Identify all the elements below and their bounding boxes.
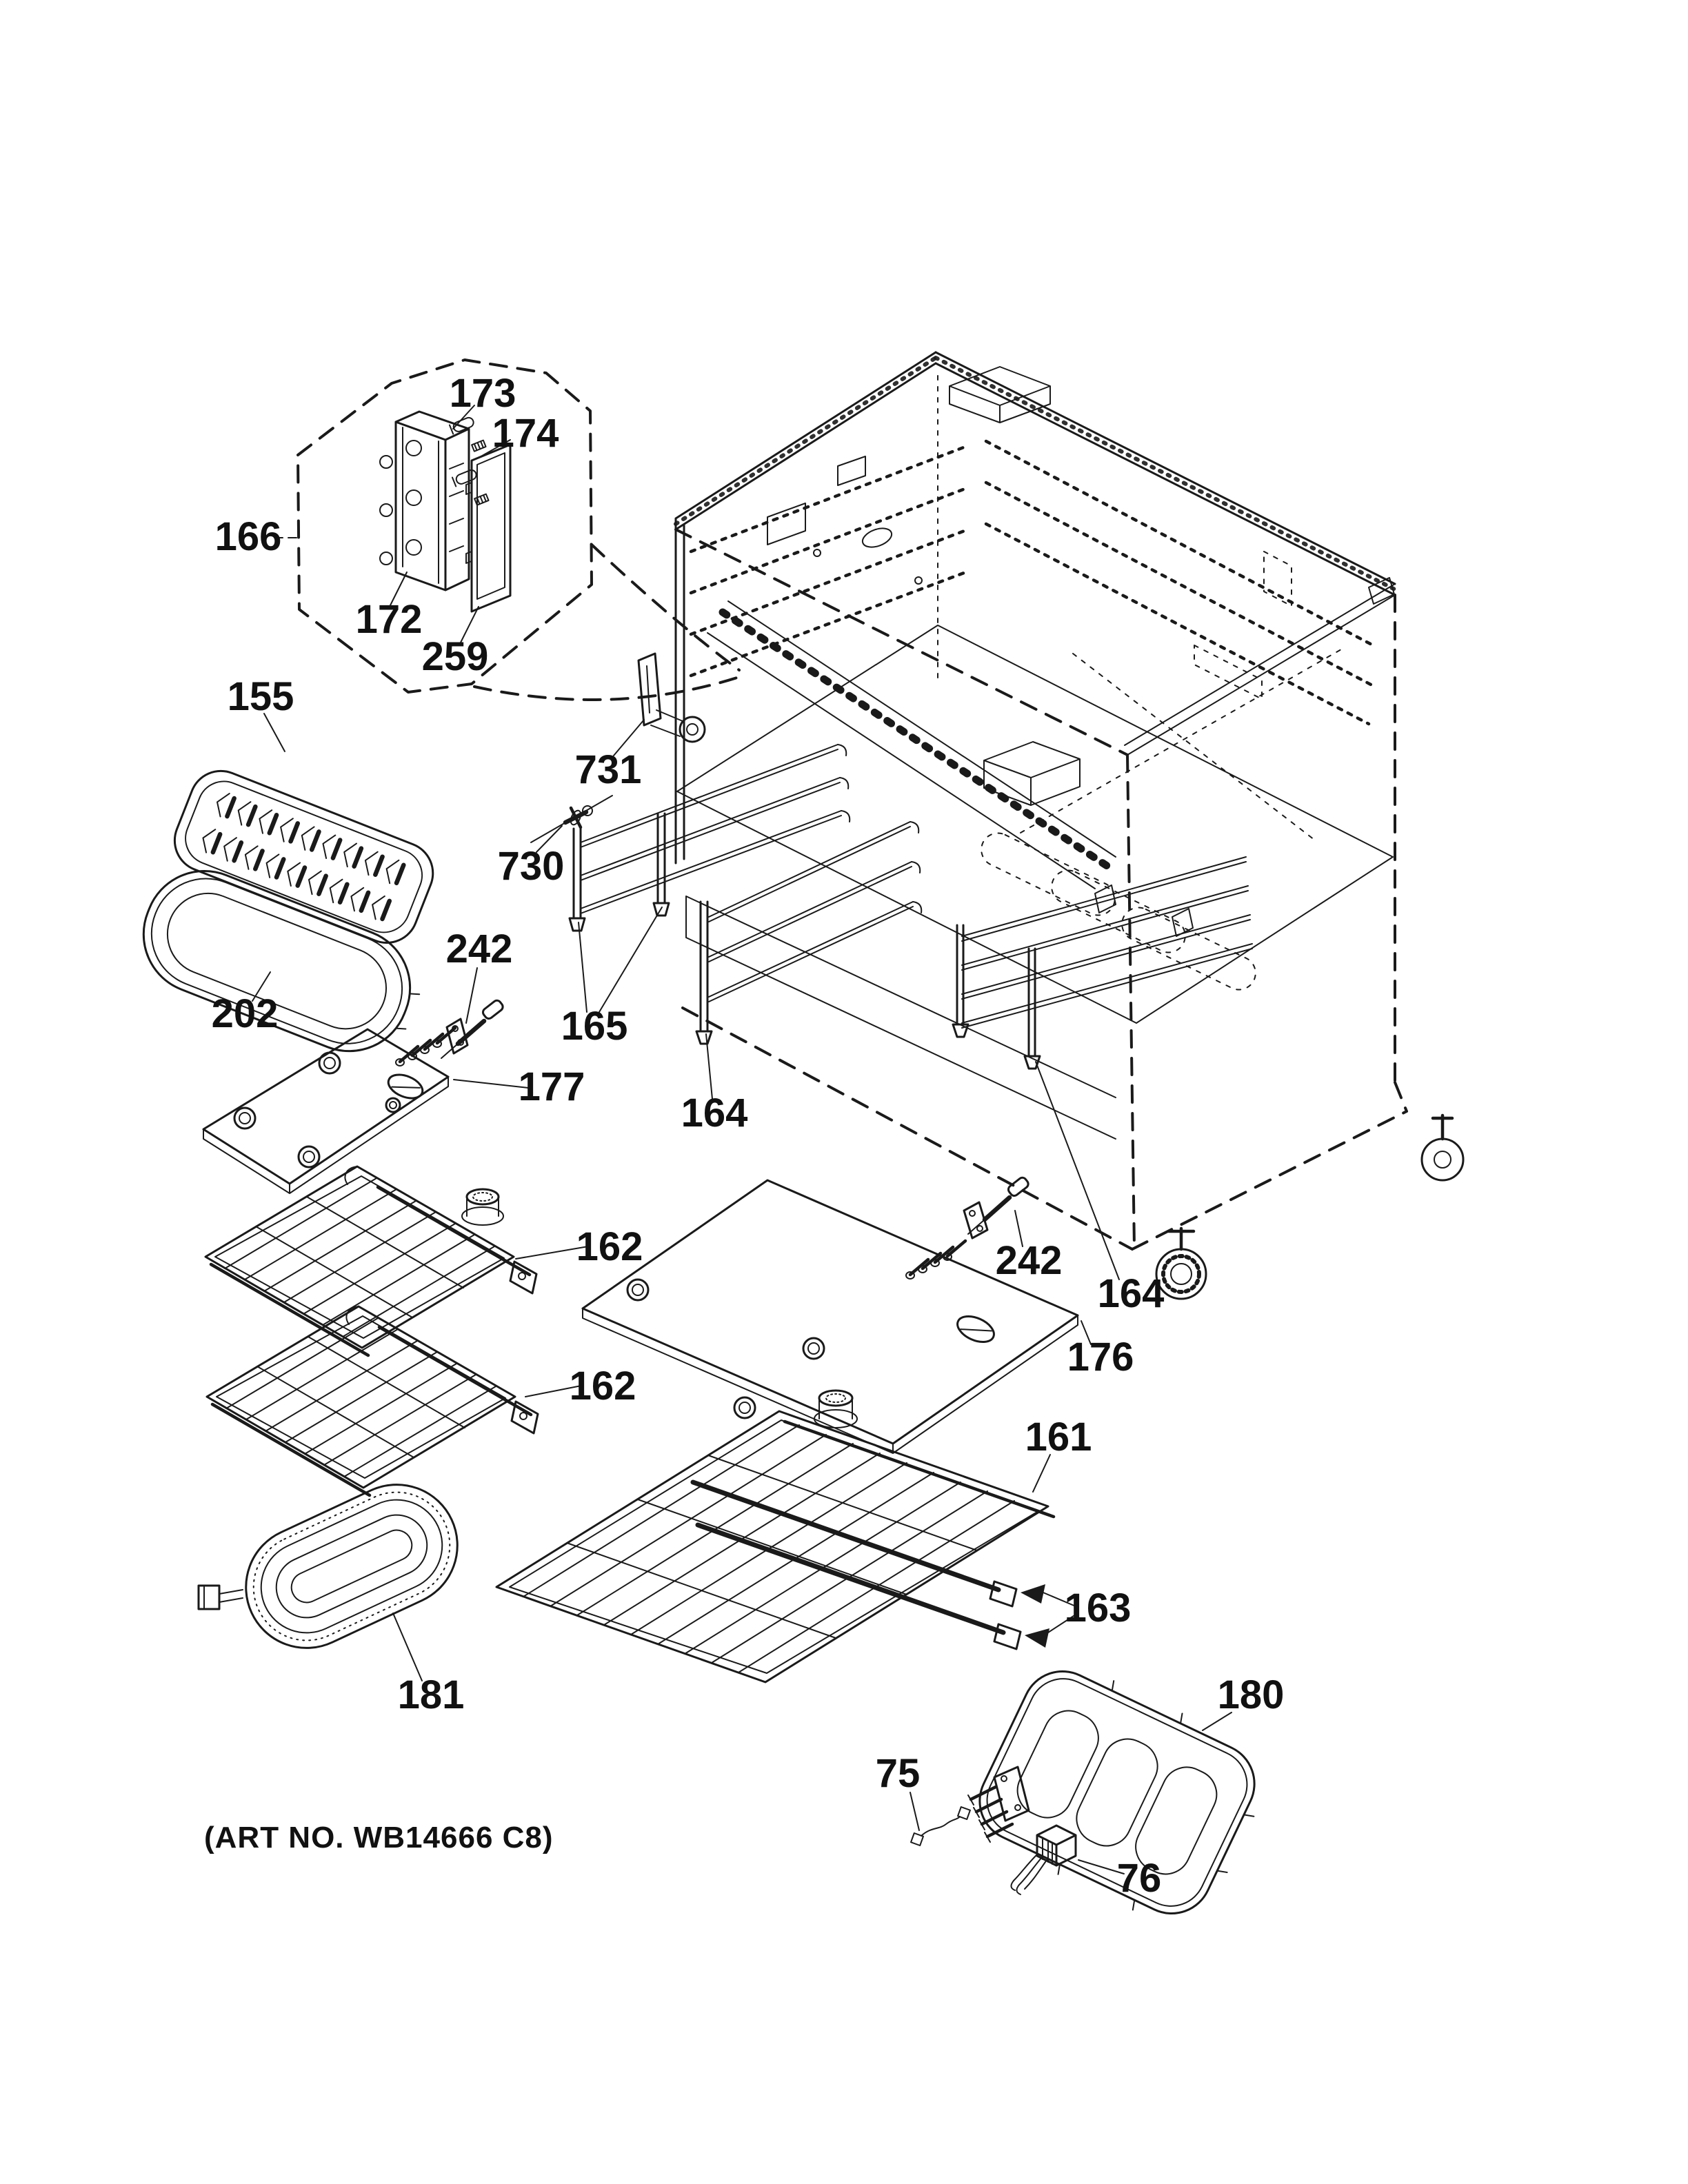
back-wall-cutouts: [767, 456, 865, 545]
grommet: [319, 1053, 340, 1073]
extension-rack-162-lower: [207, 1306, 538, 1495]
part-label-75: 75: [876, 1751, 921, 1796]
element-mount-tabs: [1028, 1681, 1280, 1939]
cabinet-body: [676, 352, 1463, 1299]
part-label-162-upper: 162: [576, 1224, 643, 1269]
rack-wires: [226, 1318, 496, 1477]
part-label-242-right: 242: [996, 1238, 1063, 1283]
right-wall-perforations: [986, 441, 1376, 724]
part-label-163: 163: [1065, 1586, 1132, 1630]
grommet-small: [386, 1098, 400, 1112]
slide-end-brackets: [990, 1581, 1021, 1649]
cabinet-left-front-edge: [676, 525, 684, 863]
broiler-pan-202: [126, 853, 434, 1071]
screws-174: [472, 441, 488, 505]
grommet: [627, 1280, 648, 1300]
oven-rack-161: [496, 1411, 1054, 1682]
rim-bracket: [1369, 578, 1394, 604]
part-label-166: 166: [215, 514, 282, 559]
part-label-165: 165: [561, 1004, 628, 1049]
exploded-view-diagram: 173 174 166 172 259 155 731 730 202 242 …: [0, 0, 1688, 2184]
cabinet-front-left-rim: [676, 529, 1127, 755]
grommet: [803, 1338, 824, 1359]
part-label-202: 202: [212, 991, 279, 1036]
cabinet-left-rim-serration: [676, 358, 936, 524]
cabinet-bottom-edges: [683, 1008, 1407, 1249]
wire-75: [911, 1807, 970, 1846]
rack-guide-164-left: [696, 822, 921, 1044]
grommet: [234, 1108, 255, 1129]
rack-guide-164-right: [953, 857, 1252, 1069]
plug-76: [1011, 1826, 1076, 1894]
part-label-76: 76: [1117, 1856, 1162, 1901]
cabinet-right-rim: [936, 352, 1395, 595]
part-label-180: 180: [1218, 1672, 1285, 1717]
terminal-block-172: [380, 412, 469, 590]
parts-diagram-page: 173 174 166 172 259 155 731 730 202 242 …: [0, 0, 1688, 2184]
diagonal-braces: [1021, 647, 1346, 840]
cabinet-front-right-rim: [1125, 584, 1395, 755]
cabinet-front-right-edge: [1127, 755, 1134, 1248]
part-label-177: 177: [519, 1064, 585, 1109]
art-number: (ART NO. WB14666 C8): [204, 1821, 554, 1854]
element-terminal-plate: [968, 1767, 1029, 1842]
element-terminal-block: [199, 1586, 243, 1609]
part-label-259: 259: [422, 634, 489, 679]
cabinet-right-rim-serration: [936, 358, 1395, 589]
part-label-176: 176: [1067, 1335, 1134, 1379]
part-label-172: 172: [356, 597, 423, 642]
grommet: [734, 1397, 755, 1418]
part-label-181: 181: [398, 1672, 465, 1717]
balloon-tail: [474, 545, 739, 700]
part-label-174: 174: [492, 411, 559, 456]
part-label-164-right: 164: [1098, 1271, 1165, 1316]
floor-knockout: [814, 525, 922, 584]
part-label-161: 161: [1025, 1415, 1092, 1459]
oven-bottom-176: [583, 1180, 1078, 1453]
part-label-731: 731: [575, 747, 642, 792]
right-wall-cutouts: [1194, 552, 1292, 699]
oven-bottom-177: [203, 1029, 503, 1225]
part-label-242-left: 242: [446, 927, 513, 971]
standoff-sleeve: [462, 1189, 503, 1225]
vent-slot-band: [723, 612, 1110, 868]
vent-slot-band-edges: [707, 601, 1116, 889]
extension-rack-162-upper: [205, 1166, 536, 1355]
broiler-grid-155: [165, 762, 442, 952]
rack-cross-wires: [567, 1455, 977, 1638]
lamp-bracket-731: [639, 654, 705, 742]
grommet: [299, 1146, 319, 1167]
part-label-164-left: 164: [681, 1091, 748, 1135]
part-label-173: 173: [450, 371, 516, 416]
warming-element-181: [199, 1465, 477, 1668]
right-leveling-foot: [1422, 1115, 1463, 1180]
grid-slots: [213, 798, 403, 919]
oval-hole: [954, 1311, 998, 1347]
part-label-730: 730: [498, 844, 565, 889]
part-label-155: 155: [228, 674, 294, 719]
rack-wires: [225, 1178, 494, 1337]
part-label-162-lower: 162: [570, 1364, 636, 1408]
